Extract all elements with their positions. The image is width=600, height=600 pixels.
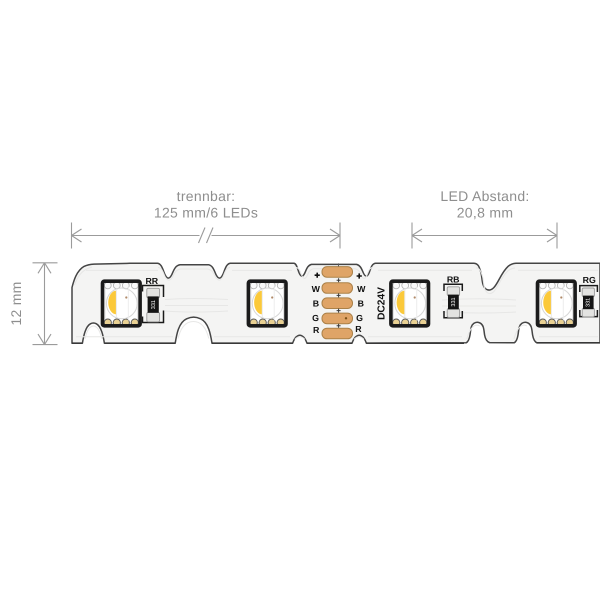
svg-text:W: W <box>357 284 366 294</box>
svg-text:G: G <box>356 313 363 323</box>
svg-text:B: B <box>358 299 364 309</box>
svg-text:RR: RR <box>145 276 158 286</box>
svg-text:RG: RG <box>583 275 596 285</box>
svg-text:R: R <box>355 324 362 334</box>
svg-text:331: 331 <box>151 300 157 309</box>
svg-text:331: 331 <box>451 297 457 306</box>
svg-text:DC24V: DC24V <box>377 287 388 320</box>
svg-text:125 mm/6 LEDs: 125 mm/6 LEDs <box>154 205 258 221</box>
svg-text:R: R <box>313 325 320 335</box>
svg-text:W: W <box>312 284 321 294</box>
svg-text:331: 331 <box>585 298 591 307</box>
svg-text:G: G <box>312 313 319 323</box>
svg-text:20,8 mm: 20,8 mm <box>457 205 514 221</box>
svg-text:12 mm: 12 mm <box>8 281 24 325</box>
svg-text:RB: RB <box>447 274 460 284</box>
svg-text:LED Abstand:: LED Abstand: <box>440 188 529 204</box>
svg-text:B: B <box>313 299 319 309</box>
svg-text:trennbar:: trennbar: <box>177 188 236 204</box>
